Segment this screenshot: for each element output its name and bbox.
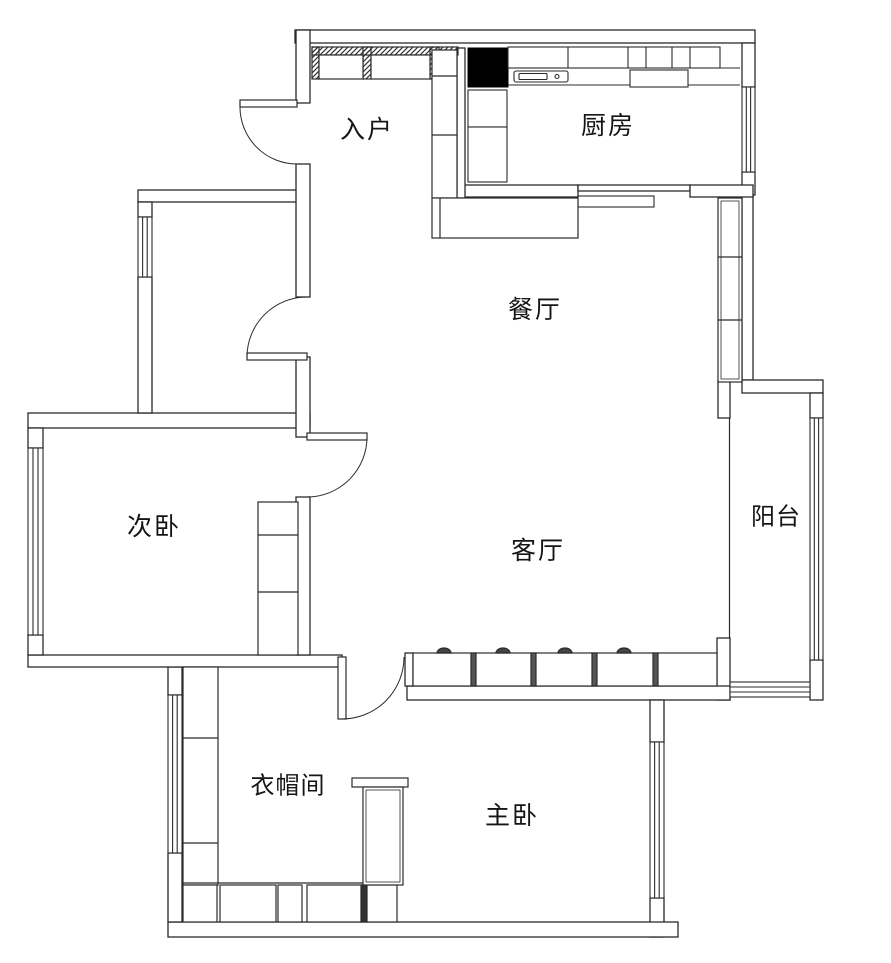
- wall-cloakroom-west-lower: [168, 853, 182, 922]
- tv-decor-1: [437, 648, 451, 653]
- window-bathroom-west: [138, 217, 152, 277]
- wall-bedroom2-south: [28, 655, 342, 667]
- wall-hall-west-1: [296, 30, 310, 103]
- kitchen-upper-cabinets: [508, 47, 720, 68]
- bedroom2-door: [307, 433, 367, 497]
- room-label-dining: 餐厅: [508, 290, 562, 326]
- wardrobes: [183, 502, 408, 922]
- bedroom2-door-leaf: [307, 433, 367, 440]
- kitchen-tall-unit-2: [468, 127, 507, 182]
- wall-dining-east: [742, 195, 753, 380]
- wall-balcony-east-upper: [810, 393, 823, 418]
- wall-bathroom-west-lower: [138, 277, 152, 413]
- kitchen-sliding-door: [578, 196, 654, 207]
- tv-decor-3: [558, 648, 572, 653]
- bedroom2-wardrobe: [258, 502, 298, 655]
- room-label-living: 客厅: [511, 531, 565, 567]
- bathroom-door-leaf: [247, 353, 307, 360]
- shoe-cabinet-2: [371, 55, 430, 79]
- floor-plan-drawing: [0, 0, 891, 963]
- balcony-railing: [730, 682, 810, 697]
- kitchen-sink-basin: [519, 74, 547, 80]
- master-door-leaf: [338, 657, 346, 719]
- bathroom-door: [247, 297, 307, 360]
- wall-kitchen-south-right: [690, 185, 753, 197]
- room-label-cloakroom: 衣帽间: [251, 766, 326, 801]
- wall-bathroom-north: [138, 190, 298, 202]
- tv-cabinet-divider-4: [653, 653, 658, 686]
- wall-bathroom-west-upper: [138, 202, 152, 217]
- wall-bedroom2-north: [28, 413, 310, 428]
- entry-tall-cabinet: [432, 50, 457, 198]
- kitchen-stove-section: [630, 70, 688, 87]
- window-cloakroom-west: [168, 695, 182, 853]
- wall-master-east-upper: [650, 700, 664, 742]
- wall-kitchen-south-left: [457, 185, 578, 197]
- wall-entry-east: [457, 48, 465, 198]
- master-door-arc: [342, 657, 404, 719]
- wall-bedroom2-west-upper: [28, 428, 43, 448]
- wall-master-north: [407, 686, 730, 700]
- room-label-kitchen: 厨房: [581, 106, 635, 142]
- shoe-cabinet-1: [319, 55, 363, 79]
- tv-decor-2: [496, 648, 510, 653]
- cloakroom-cabinet-divider: [361, 885, 367, 922]
- room-label-balcony: 阳台: [751, 497, 801, 532]
- cloakroom-bottom-cabinet-5: [367, 885, 397, 922]
- entry-door-arc: [240, 107, 297, 164]
- wall-kitchen-east-upper: [742, 43, 755, 87]
- window-master-east: [650, 742, 664, 898]
- room-label-master-bedroom: 主卧: [485, 796, 539, 832]
- floor-plan: 入户 厨房 餐厅 客厅 次卧 阳台 衣帽间 主卧: [0, 0, 891, 963]
- cloakroom-bottom-cabinet-3: [278, 885, 302, 922]
- dining-living-furniture: [413, 198, 742, 686]
- wall-hall-west-3: [296, 357, 310, 437]
- tv-cabinet-divider-1: [471, 653, 476, 686]
- hatch-pillar-1: [312, 47, 319, 79]
- wall-balcony-east-lower: [810, 660, 823, 700]
- cloakroom-west-wardrobe: [183, 667, 218, 885]
- wall-hall-west-2: [296, 164, 310, 297]
- wall-top: [295, 30, 755, 43]
- walls: [28, 30, 823, 937]
- dining-sideboard: [432, 198, 578, 238]
- wall-living-balcony-stub-top: [718, 380, 730, 418]
- cloakroom-bottom-cabinet-2: [220, 885, 276, 922]
- tv-cabinet: [413, 653, 717, 686]
- hatch-pillar-2: [363, 47, 371, 79]
- bathroom-door-arc: [247, 297, 307, 357]
- room-label-second-bedroom: 次卧: [127, 507, 181, 543]
- window-kitchen-east: [742, 87, 755, 172]
- wall-kitchen-south-pass: [578, 185, 690, 191]
- window-balcony-east: [810, 418, 823, 660]
- wall-master-door-jamb: [405, 653, 413, 686]
- partition-cabinet-top: [352, 778, 408, 787]
- cloakroom-bottom-cabinet-1: [183, 885, 217, 922]
- entry-door: [240, 100, 297, 164]
- wall-cloakroom-west-upper: [168, 667, 182, 695]
- wall-bottom: [168, 922, 678, 937]
- entry-door-leaf: [240, 100, 297, 107]
- wall-bedroom2-west-lower: [28, 635, 43, 655]
- window-bedroom2-west: [28, 448, 43, 635]
- cloakroom-bottom-cabinet-4: [307, 885, 362, 922]
- structural-column: [468, 48, 508, 87]
- tv-cabinet-divider-2: [531, 653, 536, 686]
- kitchen-faucet: [555, 75, 559, 79]
- tv-decor-4: [617, 648, 631, 653]
- tv-cabinet-divider-3: [592, 653, 597, 686]
- kitchen-tall-unit-1: [468, 90, 507, 127]
- bedroom2-door-arc: [307, 437, 367, 497]
- master-door: [338, 657, 404, 719]
- wall-balcony-top: [742, 380, 823, 393]
- room-label-entry: 入户: [340, 110, 394, 146]
